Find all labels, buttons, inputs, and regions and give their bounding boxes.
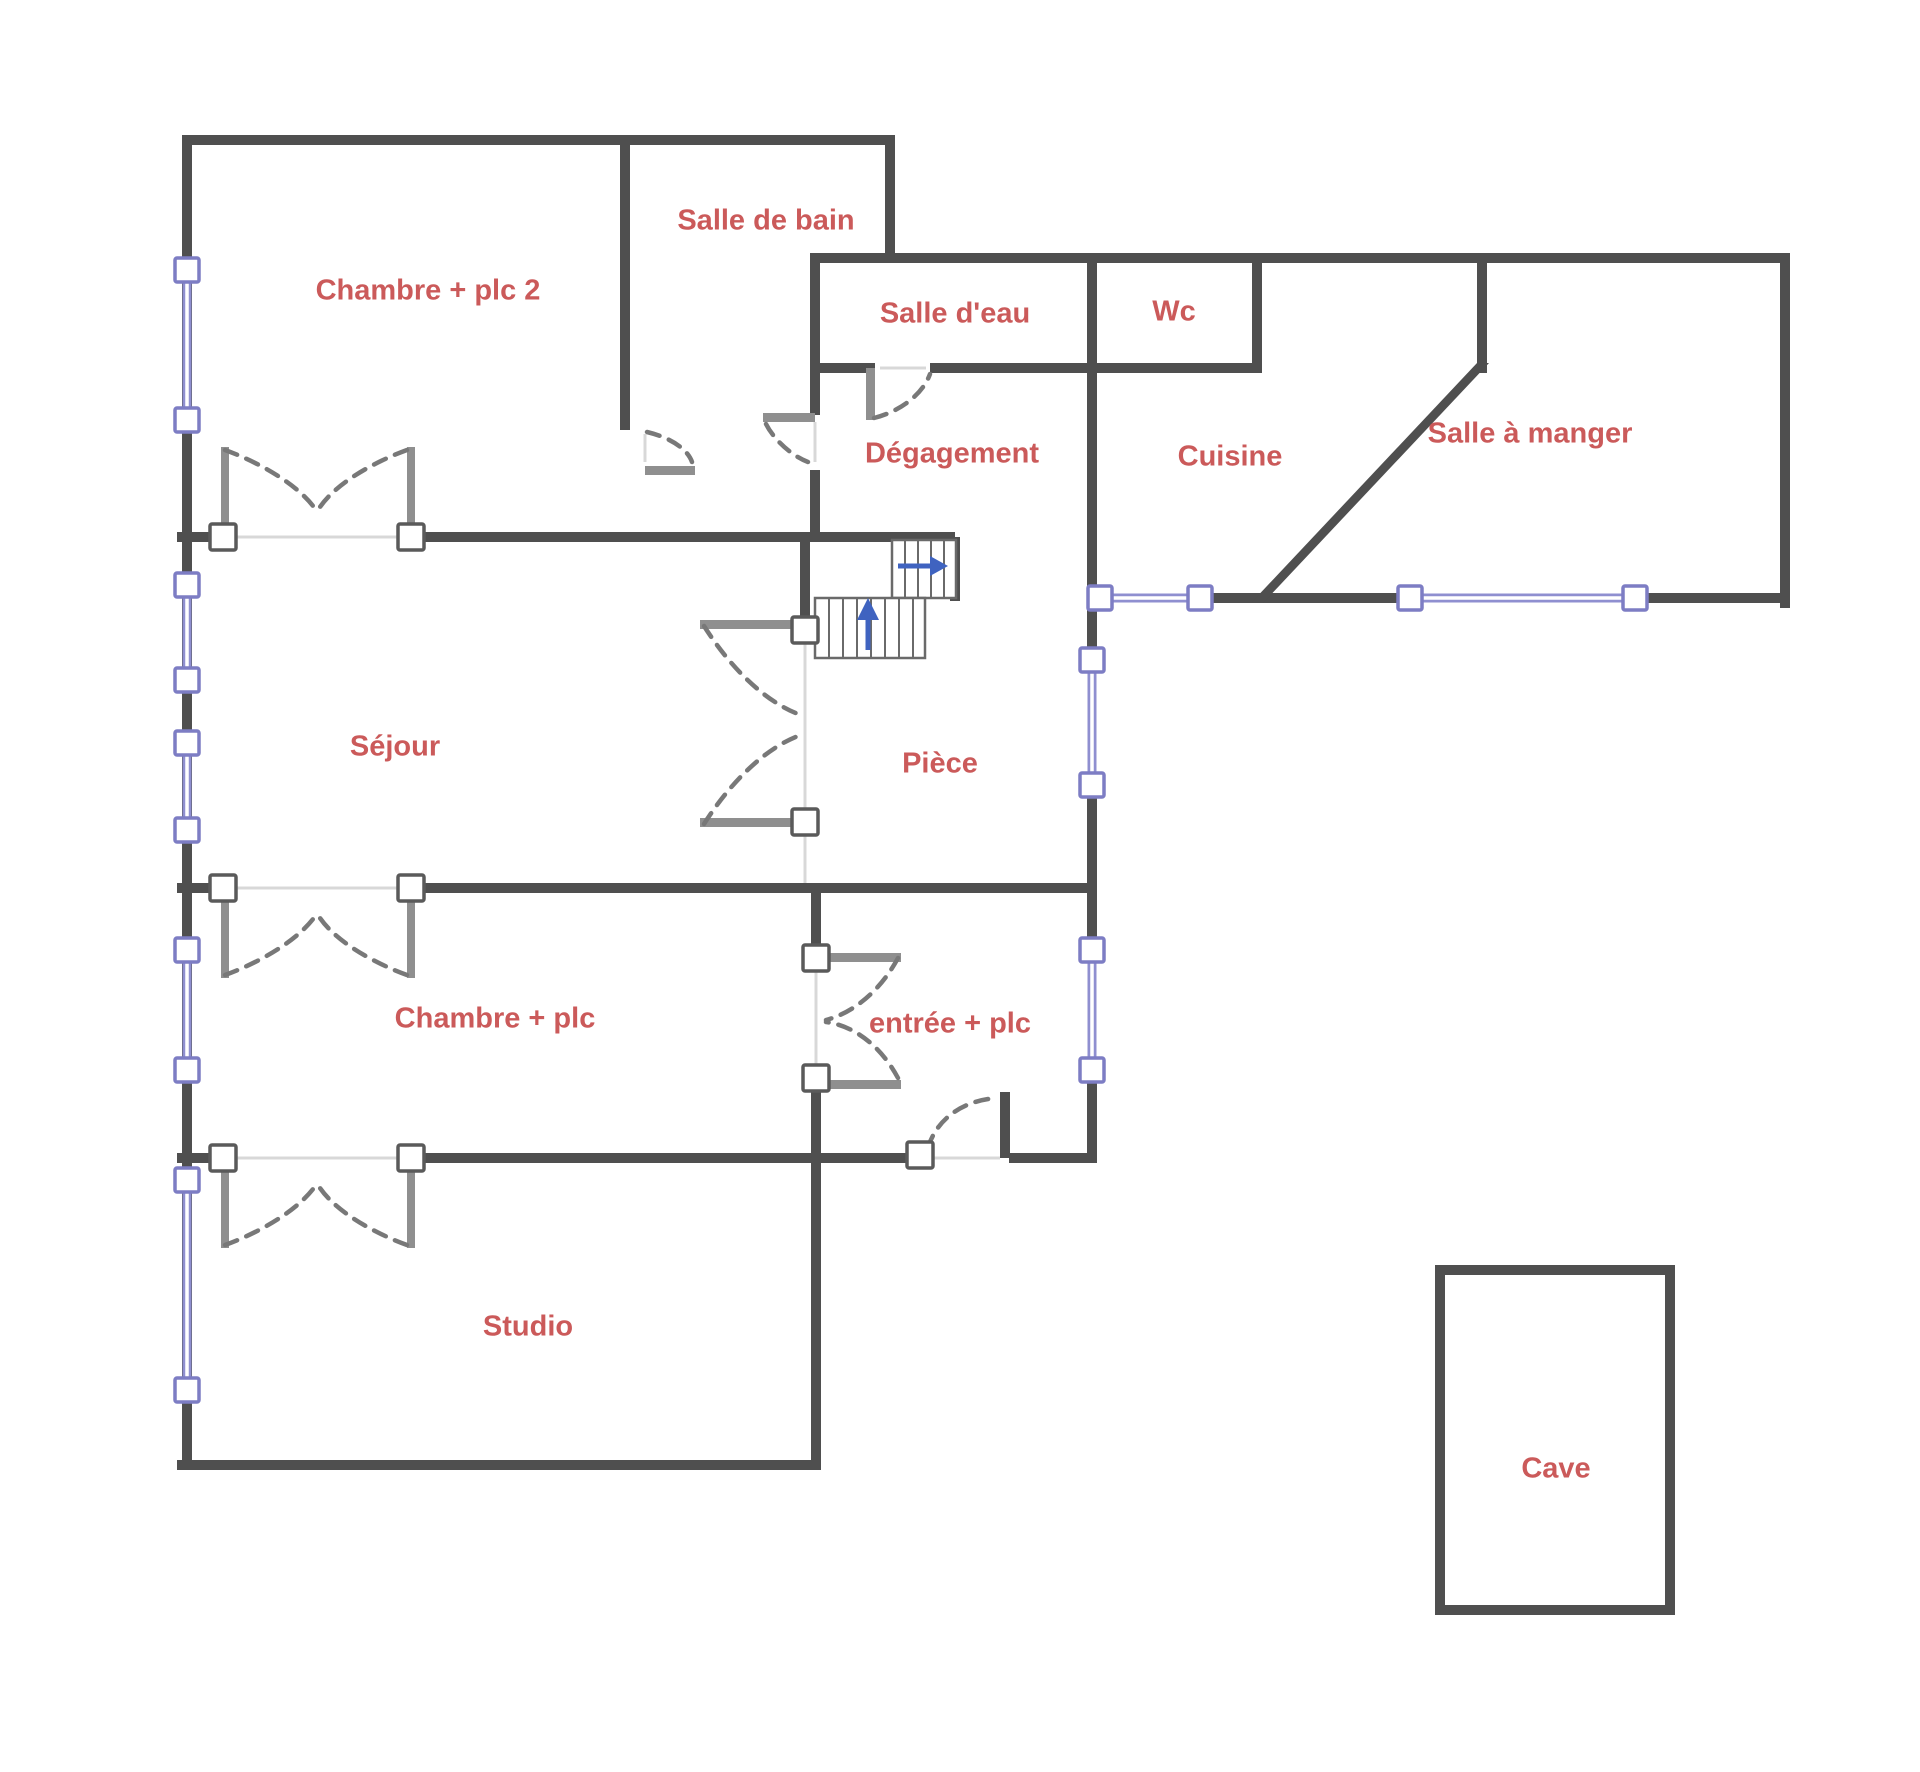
wall-segment <box>810 253 820 415</box>
wall-segment <box>1087 785 1097 950</box>
door-swing-arc <box>928 1098 998 1148</box>
room-label-cave: Cave <box>1521 1453 1590 1485</box>
room-label-studio: Studio <box>483 1311 573 1343</box>
window-handle <box>175 938 199 962</box>
door-post <box>407 893 415 978</box>
wall-segment <box>415 1153 925 1163</box>
door-post <box>221 447 229 535</box>
wall-segment <box>182 135 895 145</box>
door-swing-arc <box>704 736 798 824</box>
door-frame-handle <box>398 875 424 901</box>
door-post <box>407 1163 415 1248</box>
window-handle <box>175 731 199 755</box>
door-frame-handle <box>398 1145 424 1171</box>
door-swing-arc <box>647 432 692 462</box>
wall-segment <box>800 532 810 625</box>
door-frame-handle <box>792 809 818 835</box>
door-post <box>763 413 815 422</box>
window-handle <box>175 573 199 597</box>
door-post <box>866 368 875 420</box>
door-swing-arc <box>874 374 930 418</box>
wall-segment <box>415 883 1092 893</box>
wall-segment <box>1780 253 1790 608</box>
door-swing-arc <box>766 424 808 462</box>
wall-segment <box>1087 363 1262 373</box>
door-frame-handle <box>803 945 829 971</box>
labels-layer: Chambre + plc 2Salle de bainSalle d'eauW… <box>316 205 1633 1485</box>
window-handle <box>1080 938 1104 962</box>
door-post <box>700 818 805 827</box>
wall-segment <box>811 1153 821 1470</box>
wall-segment <box>1630 593 1790 603</box>
wall-segment <box>620 135 630 430</box>
room-label-sejour: Séjour <box>350 731 440 763</box>
wall-segment <box>1252 253 1262 373</box>
door-swing-arc <box>225 915 316 975</box>
room-label-piece: Pièce <box>902 748 978 780</box>
window-handle <box>1188 586 1212 610</box>
wall-diagonal <box>1251 363 1489 603</box>
door-swing-arc <box>318 915 407 975</box>
door-post <box>221 1163 229 1248</box>
wall-segment <box>810 363 875 373</box>
wall-segment <box>810 253 1790 263</box>
door-frame-handle <box>907 1142 933 1168</box>
wall-segment <box>1000 1092 1010 1158</box>
wall-segment <box>810 470 820 542</box>
wall-segment <box>1477 253 1487 373</box>
room-label-salle-a-manger: Salle à manger <box>1428 418 1633 450</box>
door-frame-handle <box>398 524 424 550</box>
door-swing-arc <box>704 626 798 714</box>
room-label-salle-de-bain: Salle de bain <box>677 205 854 237</box>
window-handle <box>175 408 199 432</box>
floor-plan-svg: Chambre + plc 2Salle de bainSalle d'eauW… <box>0 0 1920 1772</box>
door-swing-arc <box>318 1185 407 1245</box>
door-frame-handle <box>210 524 236 550</box>
stairs-layer <box>815 540 956 658</box>
stair-run <box>892 540 956 598</box>
door-post <box>407 447 415 535</box>
floor-plan: Chambre + plc 2Salle de bainSalle d'eauW… <box>0 0 1920 1772</box>
wall-segment <box>885 135 895 263</box>
wall-segment <box>1009 1153 1092 1163</box>
wall-segment <box>177 1460 821 1470</box>
wall-segment <box>1195 593 1415 603</box>
window-handle <box>1623 586 1647 610</box>
door-frame-handle <box>792 617 818 643</box>
window-handle <box>1398 586 1422 610</box>
wall-segment <box>1665 1265 1675 1615</box>
door-swing-arc <box>225 1185 316 1245</box>
door-swing-arc <box>318 450 407 510</box>
door-post <box>645 466 695 475</box>
window-handle <box>175 258 199 282</box>
window-handle <box>175 1168 199 1192</box>
wall-segment <box>1435 1265 1445 1615</box>
window-handle <box>175 818 199 842</box>
doors-layer <box>210 368 998 1248</box>
wall-segment <box>1435 1605 1675 1615</box>
room-label-wc: Wc <box>1152 296 1196 328</box>
room-label-cuisine: Cuisine <box>1178 441 1283 473</box>
door-frame-handle <box>803 1065 829 1091</box>
window-handle <box>1088 586 1112 610</box>
window-handle <box>175 1378 199 1402</box>
window-handle <box>175 668 199 692</box>
room-label-salle-d-eau: Salle d'eau <box>880 298 1030 330</box>
wall-segment <box>1435 1265 1675 1275</box>
door-swing-arc <box>225 450 316 510</box>
door-post <box>221 893 229 978</box>
door-frame-handle <box>210 875 236 901</box>
wall-segment <box>930 363 1092 373</box>
room-label-entree-plc: entrée + plc <box>869 1008 1031 1040</box>
room-label-chambre-plc-2: Chambre + plc 2 <box>316 275 541 307</box>
window-handle <box>1080 773 1104 797</box>
window-handle <box>1080 648 1104 672</box>
wall-segment <box>1087 1070 1097 1163</box>
window-handle <box>1080 1058 1104 1082</box>
room-label-degagement: Dégagement <box>865 438 1039 470</box>
door-frame-handle <box>210 1145 236 1171</box>
room-label-chambre-plc: Chambre + plc <box>395 1003 596 1035</box>
door-post <box>700 620 805 629</box>
wall-segment <box>415 532 955 542</box>
window-handle <box>175 1058 199 1082</box>
